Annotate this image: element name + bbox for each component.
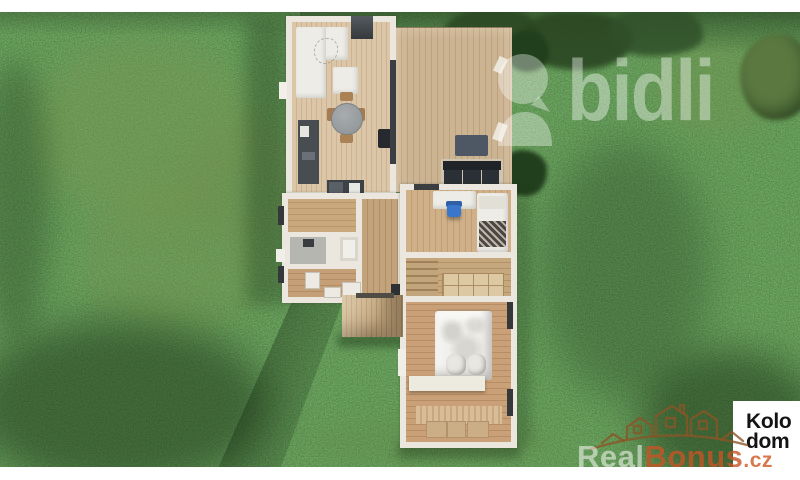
dining-table: [331, 103, 363, 135]
bidli-logo-icon: [497, 52, 555, 148]
shower-fixture: [303, 239, 314, 247]
patterned-blanket: [479, 221, 506, 247]
window-sill: [398, 349, 406, 376]
cooktop: [302, 152, 315, 160]
deck-step-edge: [356, 293, 394, 298]
washer: [305, 272, 320, 289]
dining-chair: [340, 134, 353, 143]
window: [414, 184, 439, 190]
aerial-house-render: bidli Kolo dom Real Bonus .cz: [0, 0, 800, 480]
kolodom-logo-line1: Kolo: [746, 412, 800, 432]
daybed-pillow: [479, 196, 506, 209]
office-chair: [447, 205, 461, 217]
window: [507, 389, 513, 416]
pillow: [467, 354, 486, 375]
window-sill: [279, 82, 287, 99]
dresser: [426, 421, 447, 438]
hallway-floor: [362, 199, 398, 297]
pillow: [446, 354, 466, 375]
cabinet: [324, 287, 341, 298]
outdoor-sofa-cushion: [463, 170, 481, 185]
window: [507, 302, 513, 329]
deck-sunlight: [342, 295, 403, 337]
bed-bench: [409, 376, 485, 391]
bidli-watermark: bidli: [497, 46, 734, 148]
interior-wall: [406, 252, 511, 258]
kitchen-sink: [300, 126, 309, 137]
dining-chair: [340, 92, 353, 101]
dresser: [467, 421, 489, 438]
window: [278, 206, 284, 225]
window-sill: [276, 249, 285, 262]
stairs: [406, 258, 438, 296]
dresser: [447, 421, 466, 438]
letterbox-top: [0, 0, 800, 12]
outdoor-sofa-cushion: [444, 170, 462, 185]
entrance-door: [351, 16, 373, 39]
small-room-floor: [288, 199, 356, 232]
window: [278, 266, 284, 283]
bidli-watermark-text: bidli: [567, 46, 714, 148]
deck-lounger-mat: [455, 135, 488, 156]
outdoor-sofa-cushion: [482, 170, 499, 185]
bathtub: [340, 237, 358, 261]
outdoor-sofa-backrest: [443, 161, 501, 170]
coffee-table: [333, 67, 358, 94]
letterbox-bottom: [0, 467, 800, 480]
